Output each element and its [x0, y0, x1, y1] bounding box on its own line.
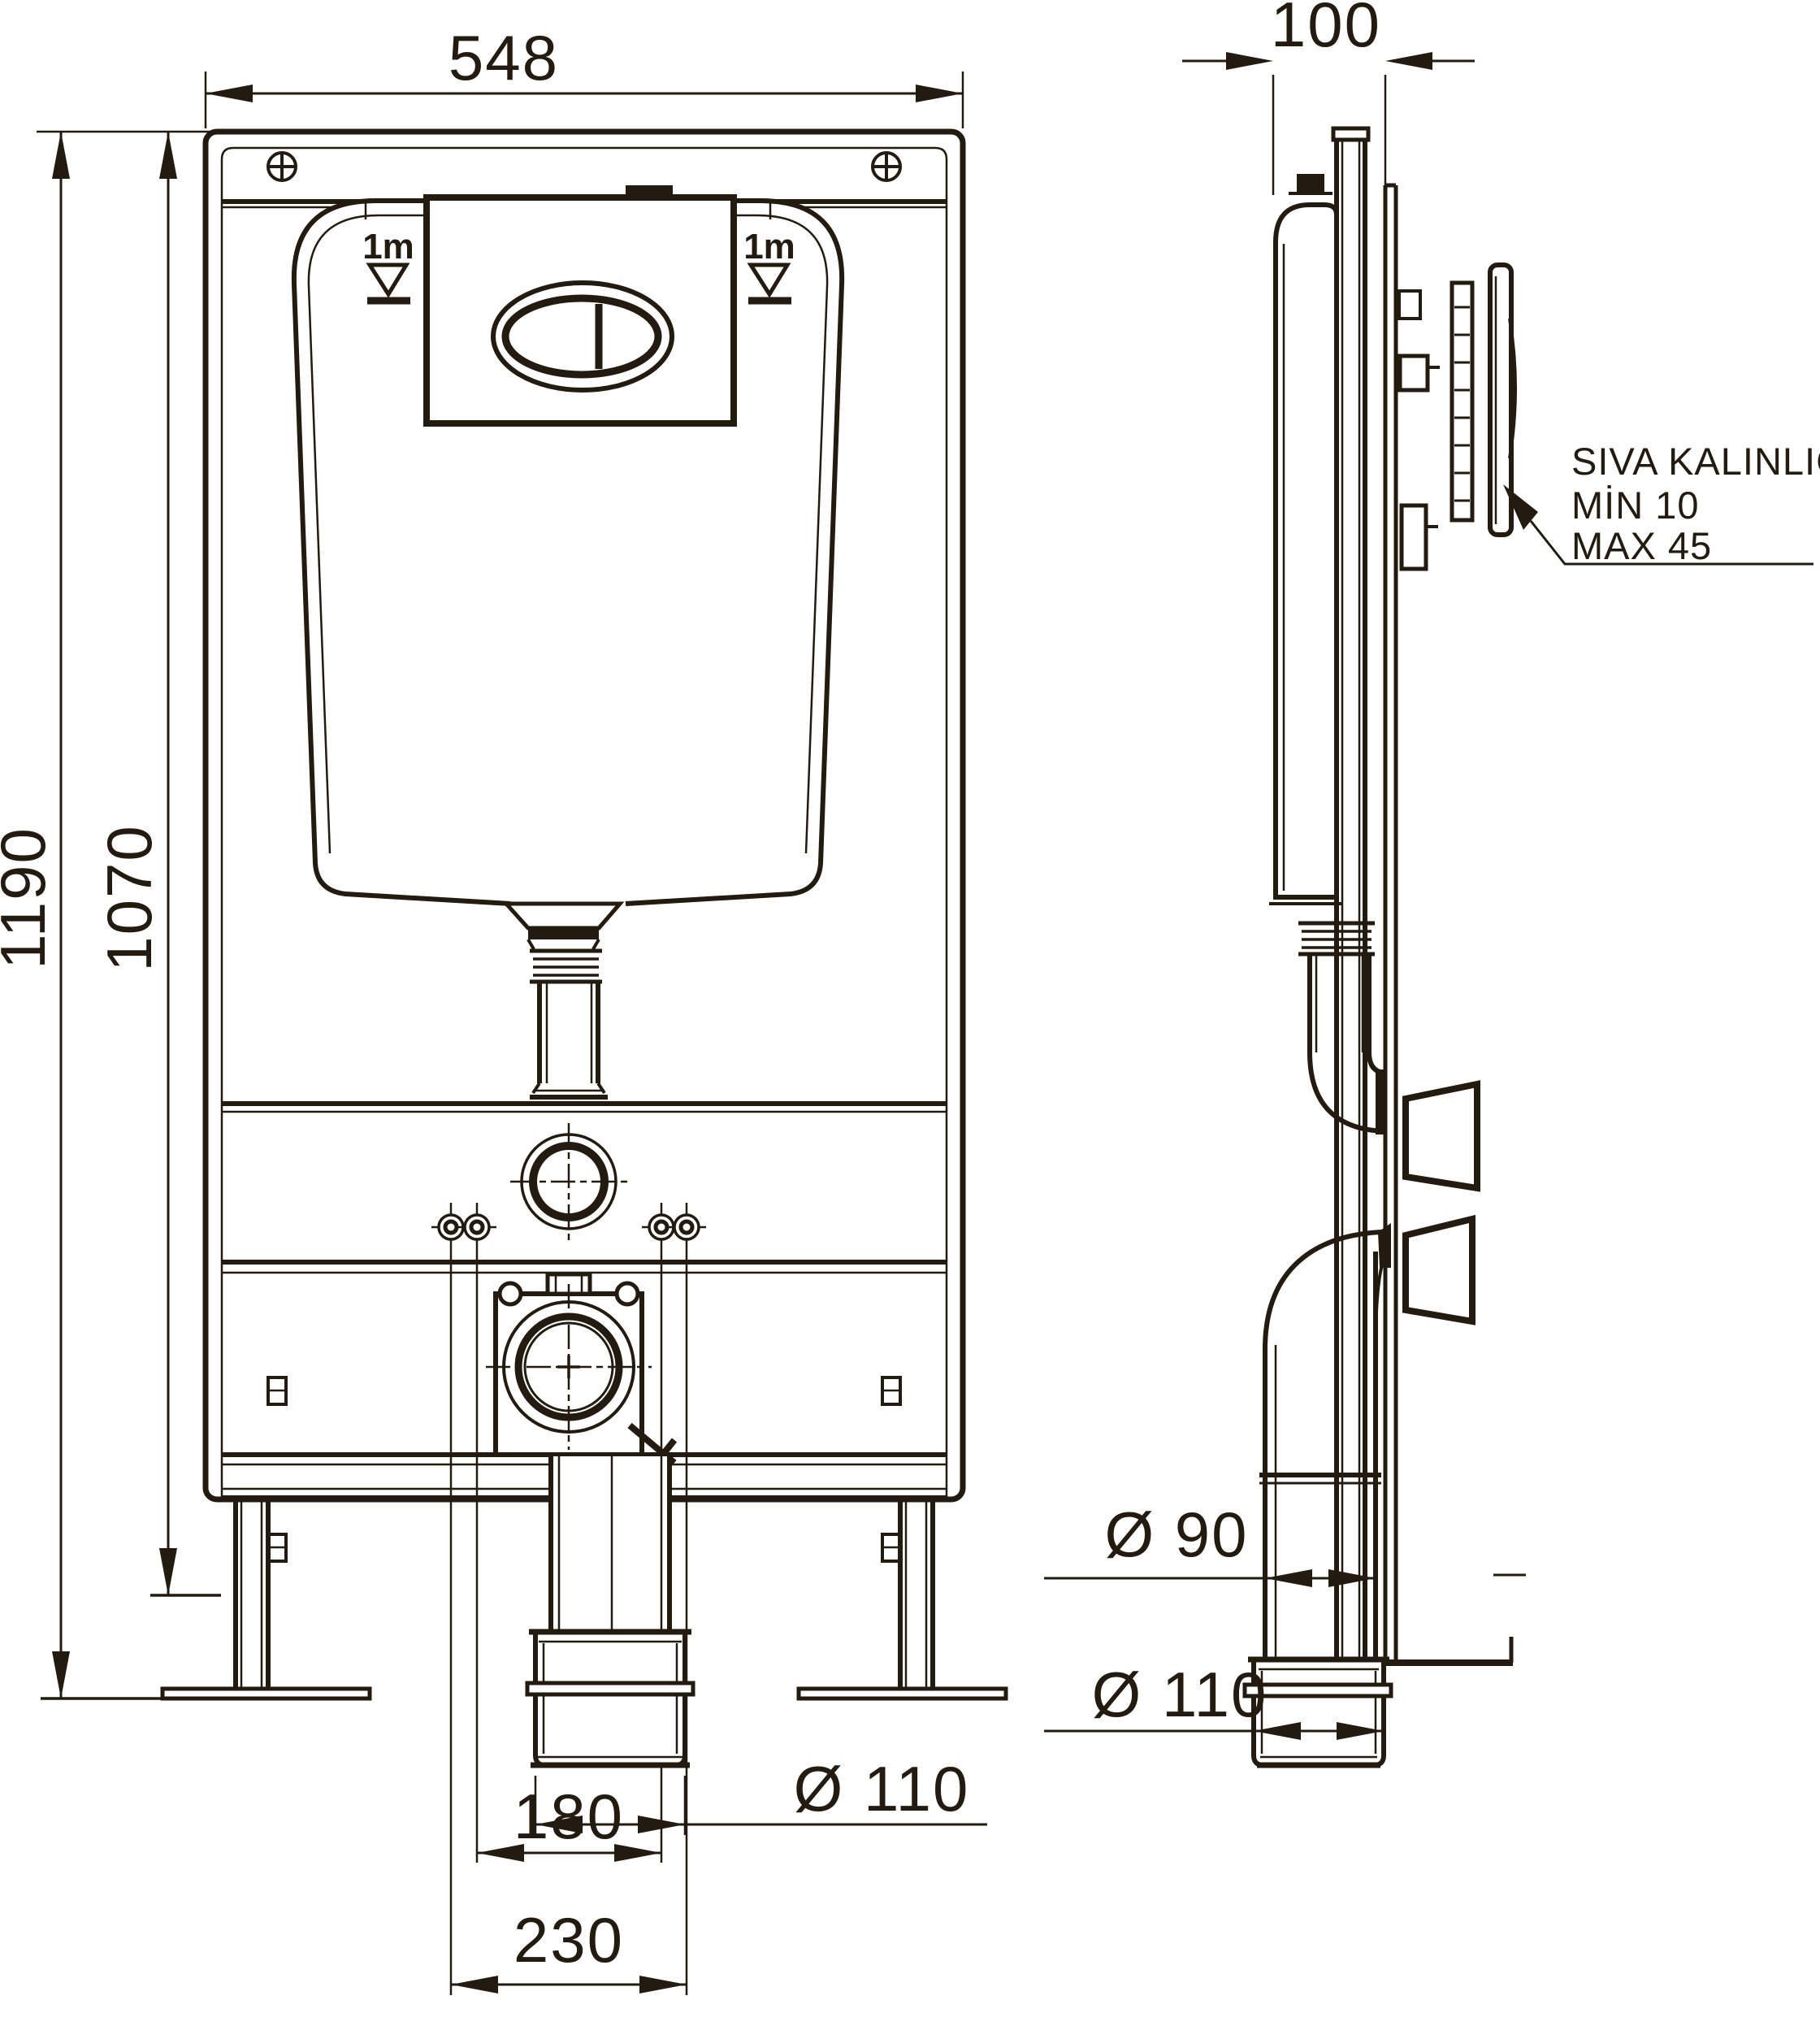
flush-pipe-front: [506, 904, 620, 1097]
front-bottom-dimensions: Ø 110 180 230: [451, 1753, 987, 1993]
technical-drawing-page: 1m 1m: [0, 0, 1820, 2026]
fixing-stud-icon: [667, 1203, 706, 1252]
inlet-connection-circle: [510, 1123, 627, 1240]
plaster-note-line3: MAX 45: [1571, 524, 1712, 567]
front-fixing-inner-label: 180: [513, 1781, 624, 1852]
plaster-note-line1: SIVA KALINLIĞI: [1571, 440, 1820, 483]
side-adapter-diameter-label: Ø 110: [1092, 1659, 1268, 1730]
front-total-height-label: 1190: [0, 826, 58, 970]
front-width-label: 548: [448, 22, 559, 93]
level-mark-label: 1m: [362, 227, 414, 267]
installation-drawing: 1m 1m: [0, 0, 1820, 2026]
front-outlet-diameter-label: Ø 110: [794, 1753, 970, 1824]
flush-plate-front: [427, 185, 734, 423]
fixing-stud-icon: [457, 1203, 496, 1252]
flush-plate-side: [1452, 265, 1515, 535]
screw-icon: [873, 153, 900, 180]
front-fixing-outer-label: 230: [513, 1904, 624, 1976]
front-inner-height-label: 1070: [93, 824, 165, 972]
plaster-note: SIVA KALINLIĞI MİN 10 MAX 45: [1503, 440, 1820, 567]
side-depth-label: 100: [1271, 0, 1381, 60]
level-mark-label: 1m: [743, 227, 795, 267]
side-pipe-diameter-label: Ø 90: [1104, 1499, 1248, 1570]
screw-icon: [268, 153, 296, 180]
front-view: 1m 1m: [0, 22, 1006, 1995]
pan-connector-cones: [1406, 1084, 1477, 1321]
side-view: 100: [1044, 0, 1820, 1765]
outlet-pipe-front: [527, 1456, 693, 1765]
plaster-note-line2: MİN 10: [1571, 484, 1700, 527]
pipes-side: [1259, 904, 1391, 1659]
side-pipe-dimension: Ø 90: [1044, 1499, 1376, 1587]
outlet-housing-front: [486, 1274, 674, 1473]
side-depth-dimension: 100: [1182, 0, 1475, 195]
cistern-side: [1276, 174, 1440, 897]
